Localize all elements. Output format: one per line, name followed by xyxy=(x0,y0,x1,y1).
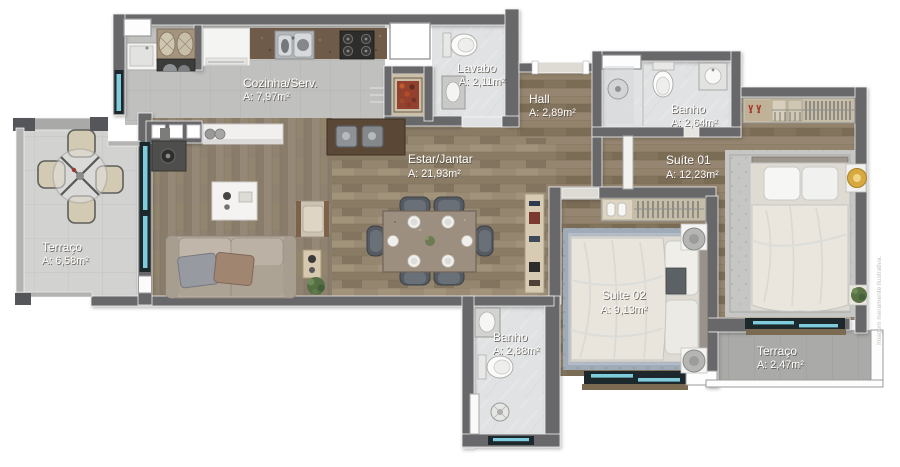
svg-text:Cozinha/Serv.: Cozinha/Serv. xyxy=(243,76,317,90)
svg-text:Terraço: Terraço xyxy=(42,240,82,254)
svg-text:A: 2,47m²: A: 2,47m² xyxy=(757,359,804,371)
svg-text:Imagem meramente ilustrativa.: Imagem meramente ilustrativa. xyxy=(876,256,883,345)
svg-text:A: 2,88m²: A: 2,88m² xyxy=(493,345,540,357)
svg-text:A: 21,93m²: A: 21,93m² xyxy=(408,168,461,180)
svg-text:A: 12,23m²: A: 12,23m² xyxy=(666,169,719,181)
svg-text:Suite 02: Suite 02 xyxy=(602,288,646,302)
svg-text:Suíte 01: Suíte 01 xyxy=(666,153,711,167)
svg-text:Banho: Banho xyxy=(493,330,528,344)
svg-text:A: 9,13m²: A: 9,13m² xyxy=(601,304,648,316)
svg-text:Banho: Banho xyxy=(671,102,706,116)
svg-text:Lavabo: Lavabo xyxy=(457,61,497,75)
svg-text:Estar/Jantar: Estar/Jantar xyxy=(408,152,473,166)
svg-text:Hall: Hall xyxy=(529,92,550,106)
svg-text:A: 2,64m²: A: 2,64m² xyxy=(671,117,718,129)
svg-text:A: 7,97m²: A: 7,97m² xyxy=(243,91,290,103)
svg-text:Terraço: Terraço xyxy=(757,344,797,358)
svg-text:A: 2,11m²: A: 2,11m² xyxy=(459,76,505,88)
svg-text:A: 2,89m²: A: 2,89m² xyxy=(529,107,576,119)
svg-text:A: 6,58m²: A: 6,58m² xyxy=(42,255,89,267)
